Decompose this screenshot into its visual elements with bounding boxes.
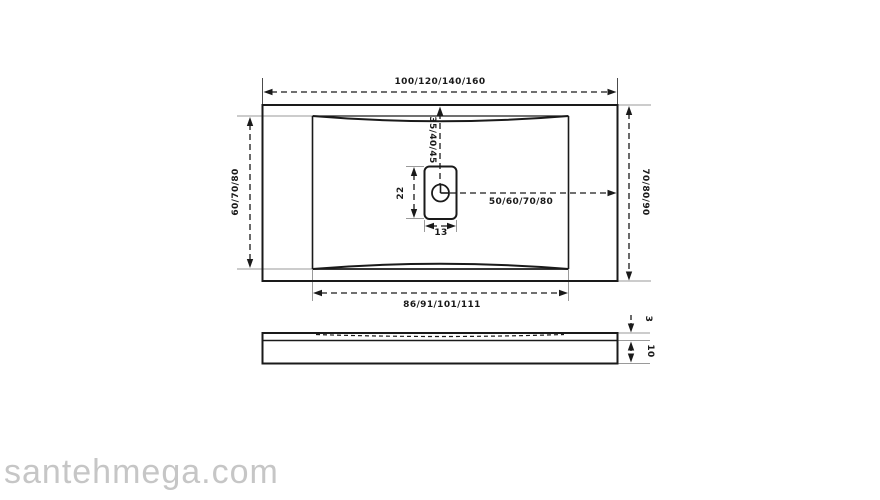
technical-drawing-canvas: 100/120/140/160 60/70/80 70/80/90 86/91/… [0, 0, 880, 500]
basin-slope-hidden-line [316, 335, 564, 337]
dim-base-thickness-label: 10 [645, 344, 655, 357]
dim-drain-width-label: 13 [434, 228, 447, 238]
top-view [237, 78, 651, 301]
dim-rim-thickness-label: 3 [643, 316, 653, 323]
dim-drain-length-label: 22 [396, 186, 406, 199]
side-arrowheads [628, 324, 634, 363]
dim-drain-offset-right-label: 50/60/70/80 [489, 197, 553, 207]
side-view [263, 315, 651, 364]
watermark: santehmega.com [4, 453, 279, 492]
dim-drain-offset-top-label: 35/40/45 [427, 116, 437, 163]
dim-overall-width-label: 100/120/140/160 [394, 77, 485, 87]
dim-depth-left-label: 60/70/80 [231, 168, 241, 215]
dim-depth-right-label: 70/80/90 [640, 168, 650, 215]
side-profile-outline [263, 333, 618, 364]
dim-basin-width-label: 86/91/101/111 [403, 300, 481, 310]
drawing-svg [0, 0, 880, 500]
